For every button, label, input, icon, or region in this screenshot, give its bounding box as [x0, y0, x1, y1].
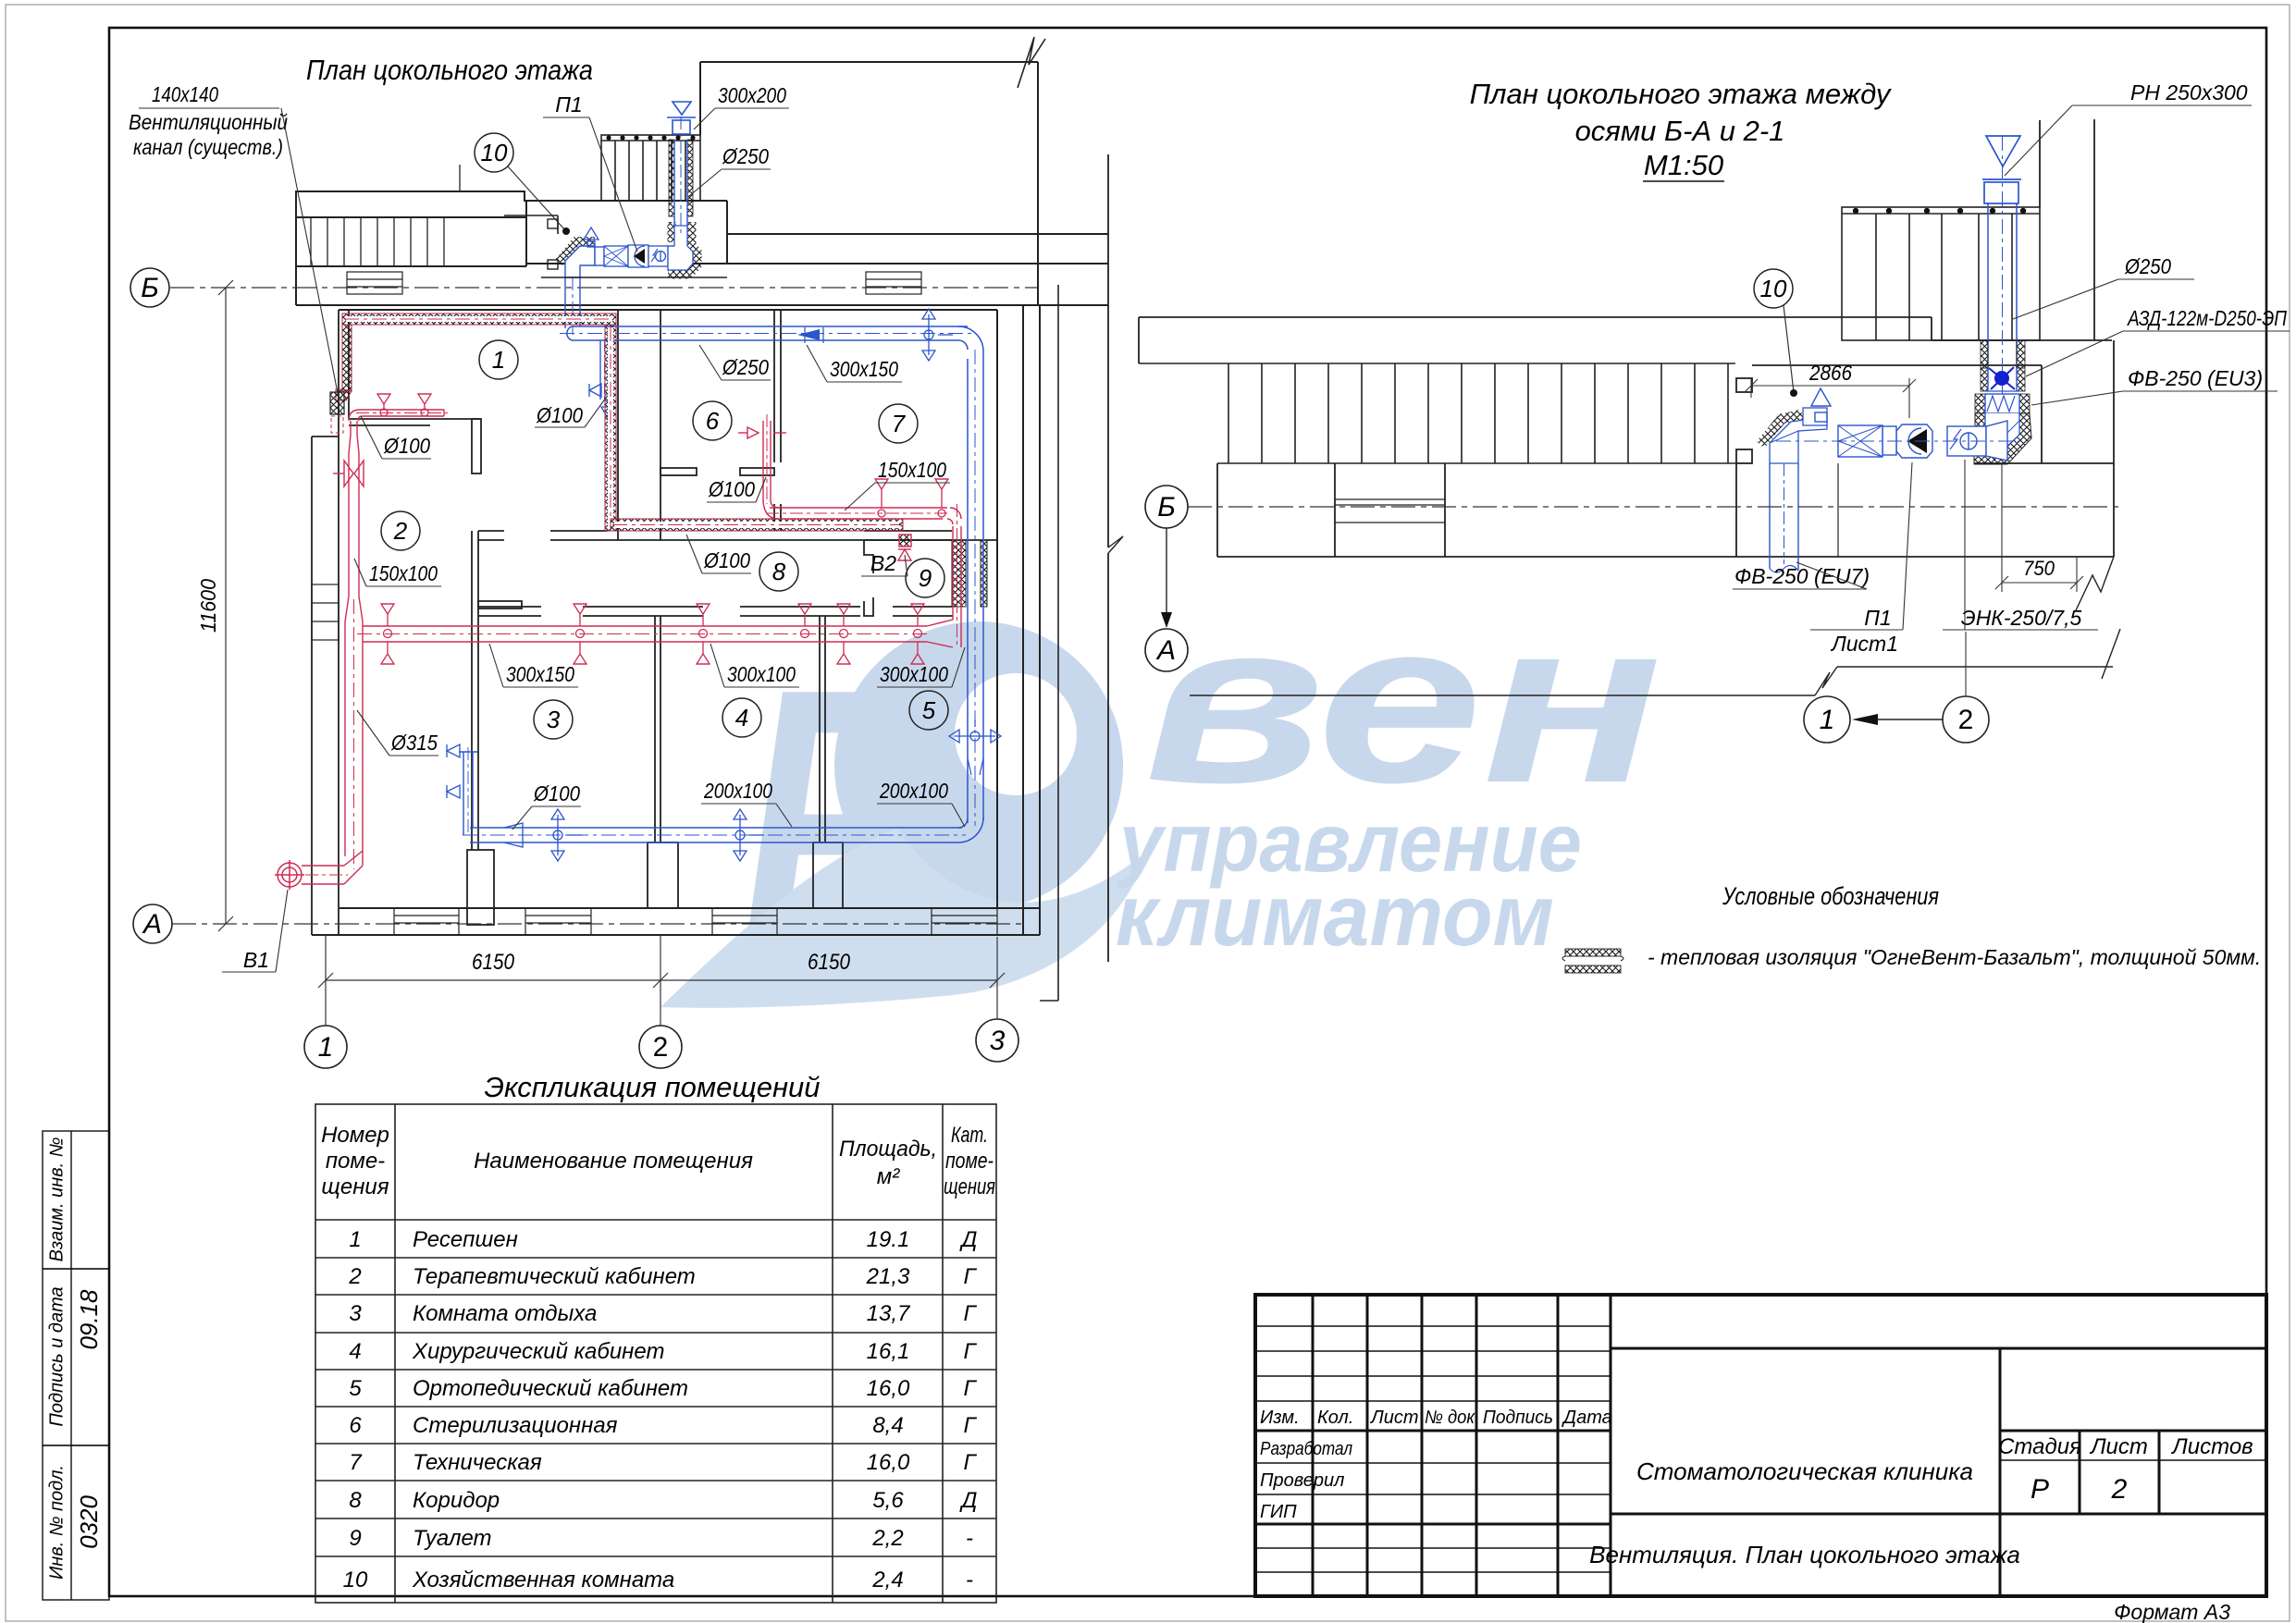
svg-text:1: 1: [318, 1032, 334, 1063]
svg-text:2: 2: [653, 1032, 669, 1063]
svg-text:1: 1: [492, 346, 505, 374]
svg-text:климатом: климатом: [1116, 867, 1554, 964]
svg-text:Кол.: Кол.: [1317, 1408, 1353, 1428]
svg-text:8: 8: [349, 1488, 362, 1513]
svg-text:150x100: 150x100: [369, 561, 438, 585]
svg-text:6150: 6150: [808, 950, 851, 975]
svg-text:21,3: 21,3: [866, 1264, 910, 1289]
svg-text:Д: Д: [959, 1227, 978, 1252]
svg-text:Номер: Номер: [321, 1123, 389, 1148]
svg-text:Ортопедический кабинет: Ортопедический кабинет: [413, 1376, 688, 1401]
svg-text:2: 2: [1958, 705, 1974, 735]
svg-text:Подпись: Подпись: [1483, 1408, 1553, 1428]
svg-text:Кат.: Кат.: [951, 1123, 988, 1148]
svg-text:вен: вен: [1144, 572, 1662, 830]
svg-text:Проверил: Проверил: [1260, 1470, 1344, 1491]
svg-text:поме-: поме-: [326, 1149, 385, 1174]
svg-text:щения: щения: [944, 1174, 995, 1199]
svg-text:А: А: [142, 909, 162, 940]
svg-text:Ø100: Ø100: [383, 434, 430, 458]
svg-text:В1: В1: [243, 948, 269, 972]
svg-text:2866: 2866: [1808, 361, 1852, 385]
svg-text:ФВ-250 (EU3): ФВ-250 (EU3): [2128, 366, 2263, 390]
svg-text:П1: П1: [1864, 606, 1891, 630]
svg-text:0320: 0320: [75, 1495, 103, 1549]
svg-text:200x100: 200x100: [703, 779, 772, 803]
svg-text:-: -: [966, 1568, 973, 1592]
svg-text:1: 1: [1820, 705, 1835, 735]
svg-text:16,1: 16,1: [867, 1339, 910, 1364]
svg-text:Р: Р: [2031, 1474, 2049, 1505]
svg-text:6: 6: [706, 407, 720, 435]
svg-text:3: 3: [990, 1026, 1006, 1056]
svg-text:2: 2: [393, 517, 408, 545]
svg-text:2,4: 2,4: [871, 1568, 903, 1592]
svg-text:Лист1: Лист1: [1830, 632, 1898, 656]
svg-text:М1:50: М1:50: [1644, 149, 1723, 181]
svg-text:щения: щения: [321, 1174, 389, 1199]
svg-text:2: 2: [2111, 1474, 2128, 1505]
svg-text:Стерилизационная: Стерилизационная: [413, 1413, 618, 1438]
svg-text:200x100: 200x100: [879, 779, 948, 803]
svg-text:3: 3: [547, 706, 561, 733]
svg-text:4: 4: [349, 1339, 361, 1364]
svg-text:м²: м²: [877, 1164, 900, 1189]
svg-text:Ø250: Ø250: [722, 355, 769, 379]
svg-text:Лист: Лист: [2089, 1434, 2148, 1459]
svg-text:Стоматологическая клиника: Стоматологическая клиника: [1636, 1457, 1973, 1485]
svg-text:Ø315: Ø315: [390, 731, 438, 755]
svg-text:Площадь,: Площадь,: [839, 1137, 937, 1162]
svg-text:Б: Б: [1157, 492, 1176, 523]
svg-text:300x200: 300x200: [718, 83, 786, 107]
svg-text:Комната отдыха: Комната отдыха: [413, 1301, 597, 1326]
svg-text:300x150: 300x150: [506, 662, 574, 686]
svg-text:Наименование помещения: Наименование помещения: [474, 1149, 753, 1174]
svg-text:Стадия: Стадия: [1998, 1434, 2081, 1459]
svg-text:1: 1: [349, 1227, 361, 1252]
svg-text:5: 5: [349, 1376, 362, 1401]
svg-text:Разработал: Разработал: [1260, 1439, 1352, 1459]
svg-text:Формат А3: Формат А3: [2114, 1600, 2230, 1623]
svg-text:ГИП: ГИП: [1260, 1502, 1297, 1522]
svg-text:2: 2: [348, 1264, 361, 1289]
svg-text:Вентиляционный: Вентиляционный: [129, 110, 288, 134]
svg-text:Г: Г: [963, 1413, 977, 1438]
svg-text:Туалет: Туалет: [413, 1526, 492, 1551]
svg-text:16,0: 16,0: [867, 1450, 910, 1475]
svg-text:Дата: Дата: [1562, 1408, 1612, 1428]
svg-text:16,0: 16,0: [867, 1376, 910, 1401]
svg-text:9: 9: [349, 1526, 361, 1551]
svg-text:7: 7: [349, 1450, 363, 1475]
svg-text:300x100: 300x100: [880, 662, 948, 686]
svg-text:140x140: 140x140: [152, 82, 218, 106]
svg-text:Техническая: Техническая: [413, 1450, 542, 1475]
svg-text:Экспликация помещений: Экспликация помещений: [484, 1071, 820, 1103]
svg-text:Взаим. инв. №: Взаим. инв. №: [46, 1137, 67, 1262]
svg-text:- тепловая изоляция "ОгнеВент-: - тепловая изоляция "ОгнеВент-Базальт", …: [1648, 945, 2261, 969]
svg-text:150x100: 150x100: [878, 458, 946, 482]
svg-text:Ø250: Ø250: [2124, 254, 2171, 278]
svg-text:Г: Г: [963, 1339, 977, 1364]
svg-text:7: 7: [892, 410, 907, 437]
svg-text:Г: Г: [963, 1301, 977, 1326]
svg-text:19.1: 19.1: [867, 1227, 910, 1252]
svg-text:5: 5: [922, 696, 936, 724]
svg-text:ФВ-250 (EU7): ФВ-250 (EU7): [1734, 564, 1870, 588]
svg-text:Терапевтический кабинет: Терапевтический кабинет: [413, 1264, 696, 1289]
svg-text:осями Б-А и 2-1: осями Б-А и 2-1: [1575, 115, 1785, 147]
svg-text:Г: Г: [963, 1376, 977, 1401]
svg-text:Ресепшен: Ресепшен: [413, 1227, 518, 1252]
svg-text:13,7: 13,7: [867, 1301, 911, 1326]
svg-text:300x100: 300x100: [727, 662, 796, 686]
svg-text:поме-: поме-: [945, 1149, 994, 1174]
svg-text:АЗД-122м-D250-ЭП: АЗД-122м-D250-ЭП: [2126, 306, 2287, 330]
svg-text:Г: Г: [963, 1264, 977, 1289]
svg-text:канал (существ.): канал (существ.): [133, 135, 283, 159]
svg-text:№ док: № док: [1425, 1408, 1475, 1428]
svg-text:9: 9: [919, 564, 932, 592]
svg-text:750: 750: [2023, 557, 2055, 580]
svg-text:300x150: 300x150: [830, 357, 898, 381]
svg-text:Ø100: Ø100: [708, 477, 755, 501]
svg-text:Хирургический кабинет: Хирургический кабинет: [412, 1339, 664, 1364]
svg-text:Изм.: Изм.: [1260, 1408, 1300, 1428]
svg-text:Подпись и дата: Подпись и дата: [46, 1286, 67, 1426]
svg-text:А: А: [1155, 635, 1176, 666]
svg-text:Ø100: Ø100: [533, 781, 580, 805]
svg-text:ЭНК-250/7,5: ЭНК-250/7,5: [1961, 606, 2082, 630]
svg-text:Ø100: Ø100: [536, 403, 583, 427]
svg-text:План цокольного этажа между: План цокольного этажа между: [1470, 78, 1893, 110]
svg-text:8,4: 8,4: [872, 1413, 903, 1438]
svg-text:РН 250x300: РН 250x300: [2130, 80, 2248, 105]
svg-text:6: 6: [349, 1413, 362, 1438]
svg-text:-: -: [966, 1526, 973, 1551]
svg-text:2,2: 2,2: [871, 1526, 903, 1551]
svg-text:Лист: Лист: [1369, 1408, 1419, 1428]
svg-text:Д: Д: [959, 1488, 978, 1513]
svg-text:План цокольного этажа: План цокольного этажа: [306, 54, 593, 86]
svg-text:Листов: Листов: [2170, 1434, 2253, 1459]
svg-text:09.18: 09.18: [75, 1289, 103, 1350]
svg-text:10: 10: [343, 1568, 368, 1592]
svg-text:Условные обозначения: Условные обозначения: [1722, 882, 1939, 910]
svg-text:Ø250: Ø250: [722, 144, 769, 168]
svg-text:Вентиляция. План цокольного эт: Вентиляция. План цокольного этажа: [1589, 1541, 2020, 1568]
svg-text:5,6: 5,6: [872, 1488, 904, 1513]
svg-text:В2: В2: [870, 551, 896, 575]
svg-text:3: 3: [349, 1301, 362, 1326]
svg-text:Ø100: Ø100: [703, 548, 750, 572]
svg-text:10: 10: [481, 139, 508, 166]
svg-text:Б: Б: [141, 273, 159, 303]
svg-text:Г: Г: [963, 1450, 977, 1475]
svg-text:Хозяйственная комната: Хозяйственная комната: [412, 1568, 674, 1592]
svg-text:8: 8: [772, 558, 786, 585]
svg-text:6150: 6150: [472, 950, 515, 975]
svg-text:Инв. № подл.: Инв. № подл.: [46, 1465, 67, 1580]
svg-text:10: 10: [1760, 275, 1787, 302]
svg-text:Коридор: Коридор: [413, 1488, 500, 1513]
svg-text:П1: П1: [555, 92, 582, 117]
svg-text:11600: 11600: [196, 579, 220, 633]
svg-text:4: 4: [735, 704, 748, 732]
